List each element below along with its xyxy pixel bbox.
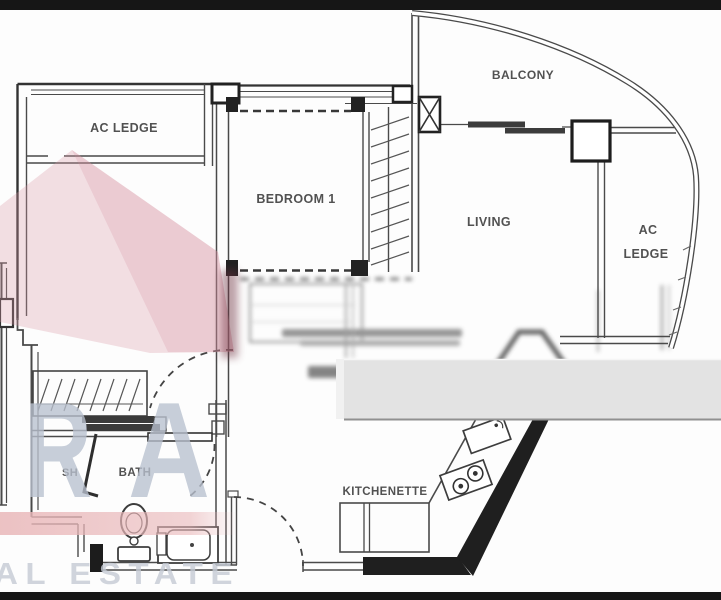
room-label-ac-right-2: LEDGE <box>623 247 668 261</box>
watermark-red-streak <box>221 270 238 358</box>
bottom-letterbox-bar <box>0 592 721 600</box>
hatched-column-icon <box>419 97 440 132</box>
room-label-ac-right-1: AC <box>639 223 658 237</box>
censor-band <box>336 359 721 420</box>
watermark-letter-r: R <box>24 374 92 526</box>
room-label-kitchenette: KITCHENETTE <box>343 486 428 498</box>
room-label-living: LIVING <box>467 215 511 229</box>
floor-plan-page: AC LEDGE BEDROOM 1 BALCONY LIVING AC LED… <box>0 0 721 600</box>
room-label-bedroom1: BEDROOM 1 <box>256 192 335 206</box>
room-label-balcony: BALCONY <box>492 68 554 82</box>
watermark-banner-text: AL ESTATE <box>0 556 240 591</box>
floor-plan-drawing: AC LEDGE BEDROOM 1 BALCONY LIVING AC LED… <box>0 0 721 600</box>
room-label-ac-ledge-left: AC LEDGE <box>90 121 158 135</box>
top-letterbox-bar <box>0 0 721 10</box>
watermark-letter-a: A <box>128 374 210 526</box>
